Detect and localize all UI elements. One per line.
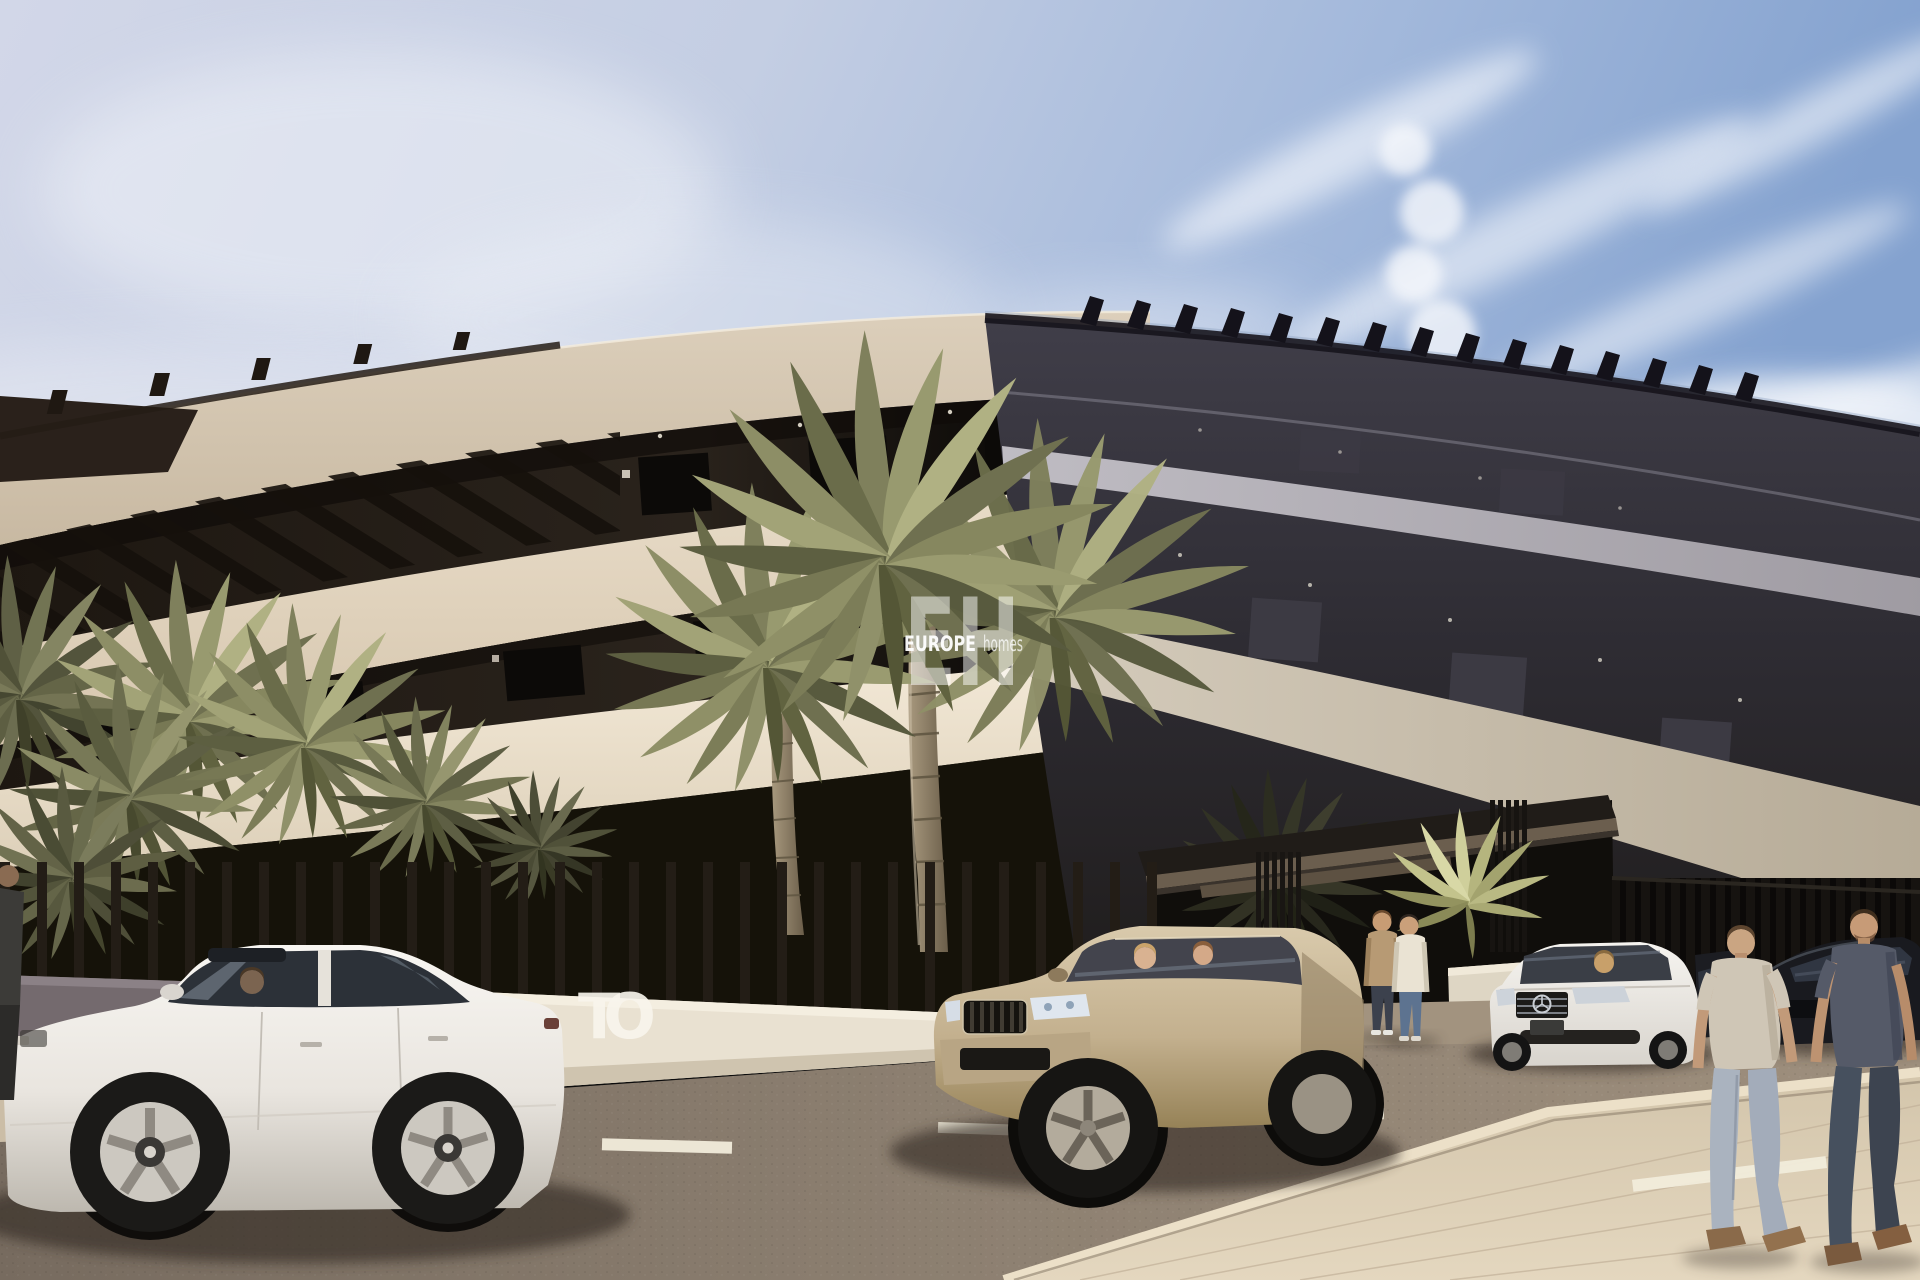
watermark-brand: EUROPE bbox=[904, 632, 976, 656]
mercedes-license-plate bbox=[1530, 1020, 1564, 1035]
watermark: EH EUROPE homes bbox=[904, 573, 1023, 714]
mercedes-headlight-right bbox=[1572, 986, 1630, 1004]
mercedes-headlight-left bbox=[1496, 988, 1516, 1006]
watermark-brand-suffix: homes bbox=[983, 632, 1023, 656]
wall-sign-text: TO bbox=[578, 980, 666, 1053]
sedan-taillight bbox=[544, 1018, 559, 1029]
sedan-driver bbox=[240, 970, 264, 994]
suv-headlight-left bbox=[945, 1000, 960, 1022]
render-canvas: TO bbox=[0, 0, 1920, 1280]
property-render-photo: TO bbox=[0, 0, 1920, 1280]
mercedes-driver bbox=[1594, 953, 1614, 973]
sedan-sunroof bbox=[208, 948, 286, 962]
suv-headlight-right bbox=[1030, 994, 1090, 1020]
